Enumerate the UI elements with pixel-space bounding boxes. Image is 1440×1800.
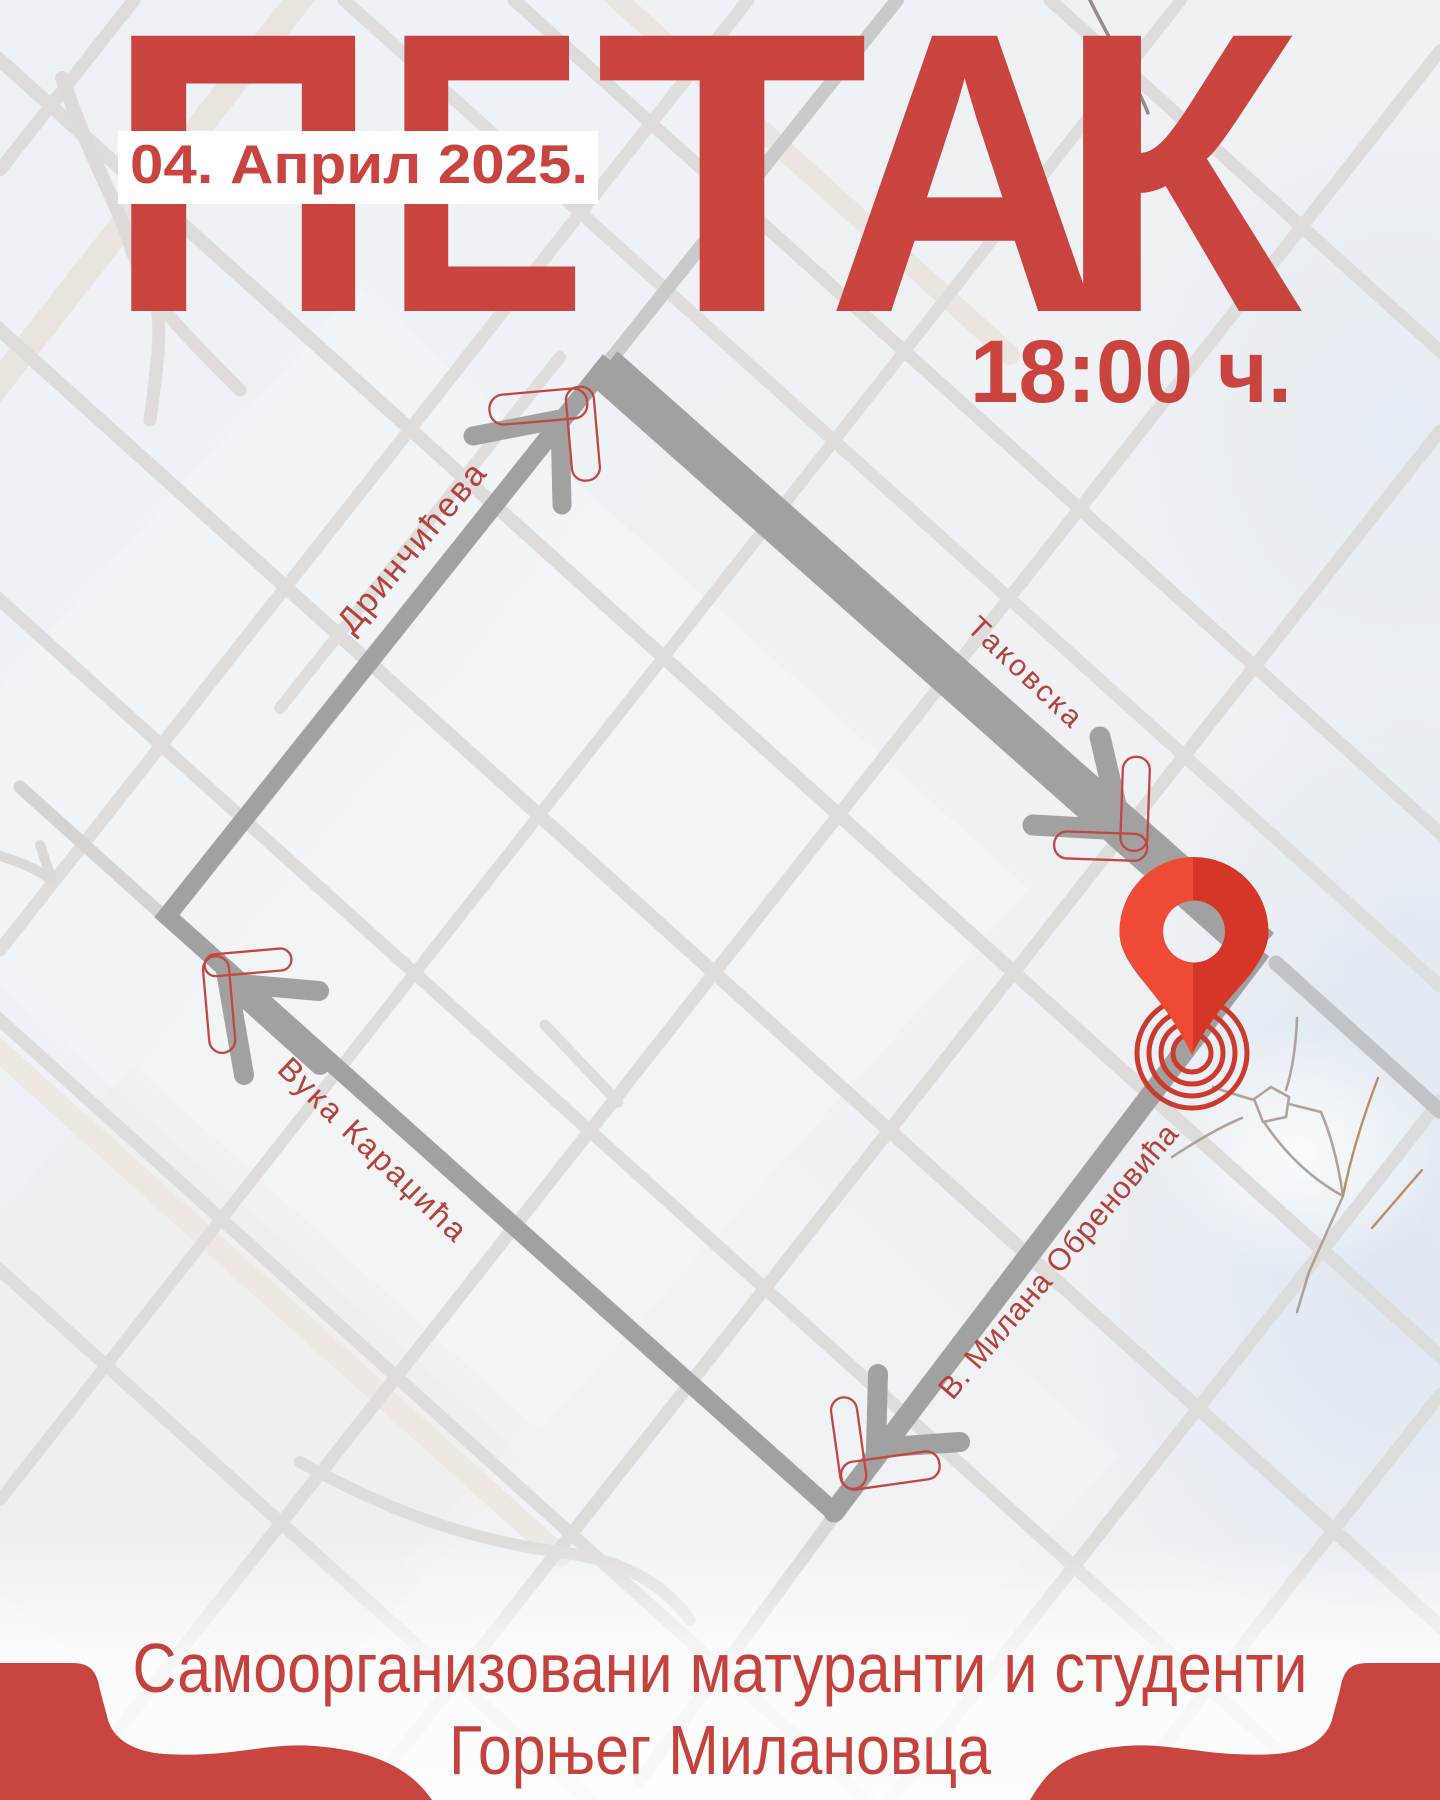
svg-text:04. Април 2025.: 04. Април 2025. [130,133,588,195]
svg-text:18:00 ч.: 18:00 ч. [970,321,1292,421]
svg-text:Самоорганизовани матуранти и с: Самоорганизовани матуранти и студенти [133,1629,1308,1707]
svg-text:Горњег Милановца: Горњег Милановца [449,1711,991,1789]
